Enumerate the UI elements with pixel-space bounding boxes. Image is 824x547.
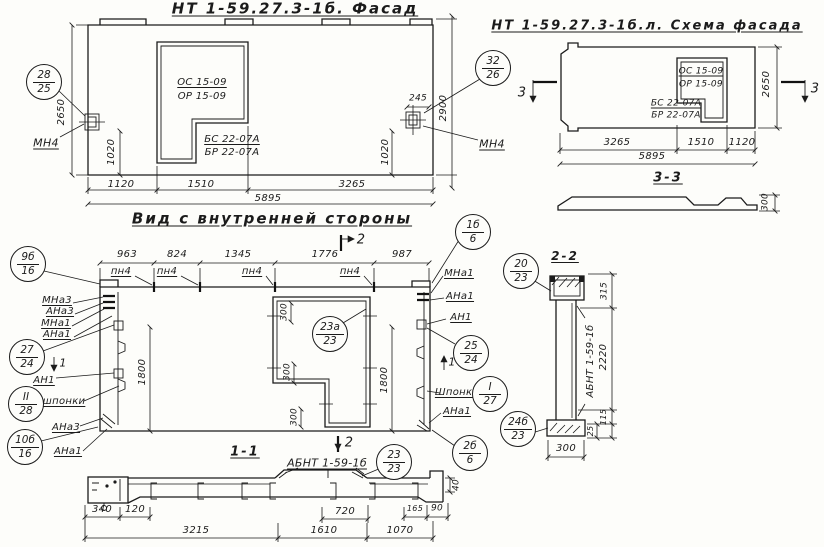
title-section-2-2: 2-2 <box>551 250 579 262</box>
dim-1120: 1120 <box>108 180 135 190</box>
dim-1800-right: 1800 <box>380 367 390 394</box>
label-abnt-11: АБНТ 1-59-1б <box>287 458 367 469</box>
window-mark-bs: БС 22-07А <box>204 135 260 145</box>
label-ana1-right-bottom: АНа1 <box>443 407 471 417</box>
dim-1776: 1776 <box>312 250 339 260</box>
dim-1070: 1070 <box>387 526 414 536</box>
title-inner-view: Вид с внутренней стороны <box>132 212 412 227</box>
dim-115: 115 <box>600 409 608 425</box>
dim-90: 90 <box>431 505 443 514</box>
dim-1510: 1510 <box>188 180 215 190</box>
dim-40: 40 <box>453 479 462 491</box>
label-ana1-right: АНа1 <box>446 292 474 302</box>
dim-2650-scheme: 2650 <box>762 71 772 98</box>
dim-720: 720 <box>335 507 355 517</box>
facade-drawing <box>59 16 480 204</box>
dim-2220: 2220 <box>599 344 609 371</box>
scheme-drawing <box>533 43 805 211</box>
callout-25-24: 2524 <box>453 335 489 371</box>
dim-2900: 2900 <box>439 95 449 122</box>
dim-3265: 3265 <box>339 180 366 190</box>
dim-1800-left: 1800 <box>138 359 148 386</box>
dim-1610: 1610 <box>311 526 338 536</box>
dim-120: 120 <box>125 505 145 515</box>
window-mark-os: ОС 15-09 <box>177 78 227 88</box>
label-mn4-right: МН4 <box>479 139 505 150</box>
label-an1-right: АН1 <box>450 313 472 323</box>
window-mark-br: БР 22-07А <box>205 148 260 158</box>
callout-28-25: 2825 <box>26 64 62 100</box>
window-mark-bs-scheme: БС 22-07А <box>651 100 701 109</box>
dim-340: 340 <box>92 505 112 515</box>
callout-1b-6: 1б6 <box>455 214 491 250</box>
label-pn4-1: пн4 <box>111 267 131 277</box>
title-facade: НТ 1-59.27.3-1б. Фасад <box>172 2 418 17</box>
label-ana3-left: АНа3 <box>46 307 74 317</box>
section-cut-1-left: 1 <box>59 358 66 369</box>
dim-1020: 1020 <box>107 139 117 166</box>
callout-2b-6: 2б6 <box>452 435 488 471</box>
section-cut-3-right: 3 <box>811 83 820 96</box>
callout-27-24: 2724 <box>9 339 45 375</box>
section-cut-2-bottom: 2 <box>345 437 354 450</box>
title-section-1-1: 1-1 <box>230 446 260 459</box>
dim-3215: 3215 <box>183 526 210 536</box>
callout-9b-16: 9б16 <box>10 246 46 282</box>
window-mark-br-scheme: БР 22-07А <box>651 112 700 121</box>
blueprint-sheet: НТ 1-59.27.3-1б. Фасад НТ 1-59.27.3-1б.л… <box>0 0 824 547</box>
dim-824: 824 <box>167 250 187 260</box>
label-pn4-2: пн4 <box>157 267 177 277</box>
dim-315: 315 <box>601 282 610 300</box>
label-mna1-right: МНа1 <box>444 269 474 279</box>
callout-20-23: 2023 <box>503 253 539 289</box>
dim-5895-scheme: 5895 <box>639 152 666 162</box>
label-an1-left: АН1 <box>33 376 55 386</box>
dim-2650: 2650 <box>57 99 67 126</box>
label-ana3-left-bottom: АНа3 <box>52 423 80 433</box>
dim-300-section33: 300 <box>762 193 771 211</box>
dim-300-window-mid: 300 <box>284 363 293 381</box>
window-mark-or: ОР 15-09 <box>178 92 227 102</box>
label-mna3-left: МНа3 <box>42 296 72 306</box>
dim-1510-scheme: 1510 <box>688 138 715 148</box>
label-pn4-3: пн4 <box>242 267 262 277</box>
dim-165: 165 <box>407 505 423 513</box>
window-mark-os-scheme: ОС 15-09 <box>679 68 724 77</box>
callout-i-27: I27 <box>472 376 508 412</box>
dim-3265-scheme: 3265 <box>604 138 631 148</box>
label-mna1-left: МНа1 <box>41 319 71 329</box>
section-cut-2-top: 2 <box>357 234 366 247</box>
title-section-3-3: 3-3 <box>653 172 683 185</box>
dim-5895: 5895 <box>255 194 282 204</box>
callout-ii-28: II28 <box>8 386 44 422</box>
section-cut-3-left: 3 <box>518 87 527 100</box>
label-ana1-left-bottom: АНа1 <box>54 447 82 457</box>
callout-10b-16: 10б16 <box>7 429 43 465</box>
dim-300-section22: 300 <box>556 444 576 454</box>
window-mark-or-scheme: ОР 15-09 <box>679 81 723 90</box>
callout-23a-23: 23а23 <box>312 316 348 352</box>
dim-1020-right: 1020 <box>381 139 391 166</box>
dim-987: 987 <box>392 250 412 260</box>
dim-963: 963 <box>117 250 137 260</box>
dim-300-window-top: 300 <box>281 303 290 321</box>
callout-23-23: 2323 <box>376 444 412 480</box>
label-shponki-left: шпонки <box>43 397 86 407</box>
label-mn4-left: МН4 <box>33 138 59 149</box>
dim-1120-scheme: 1120 <box>729 138 756 148</box>
dim-300-window-bottom: 300 <box>291 408 300 426</box>
title-scheme: НТ 1-59.27.3-1б.л. Схема фасада <box>491 20 802 33</box>
label-pn4-4: пн4 <box>340 267 360 277</box>
dim-245: 245 <box>409 95 427 104</box>
label-abnt-22: АБНТ 1-59-1б <box>586 325 596 398</box>
label-ana1-left: АНа1 <box>43 330 71 340</box>
dim-1345: 1345 <box>225 250 252 260</box>
callout-24b-23: 24б23 <box>500 411 536 447</box>
dim-25: 25 <box>587 426 595 437</box>
callout-32-26: 3226 <box>475 50 511 86</box>
